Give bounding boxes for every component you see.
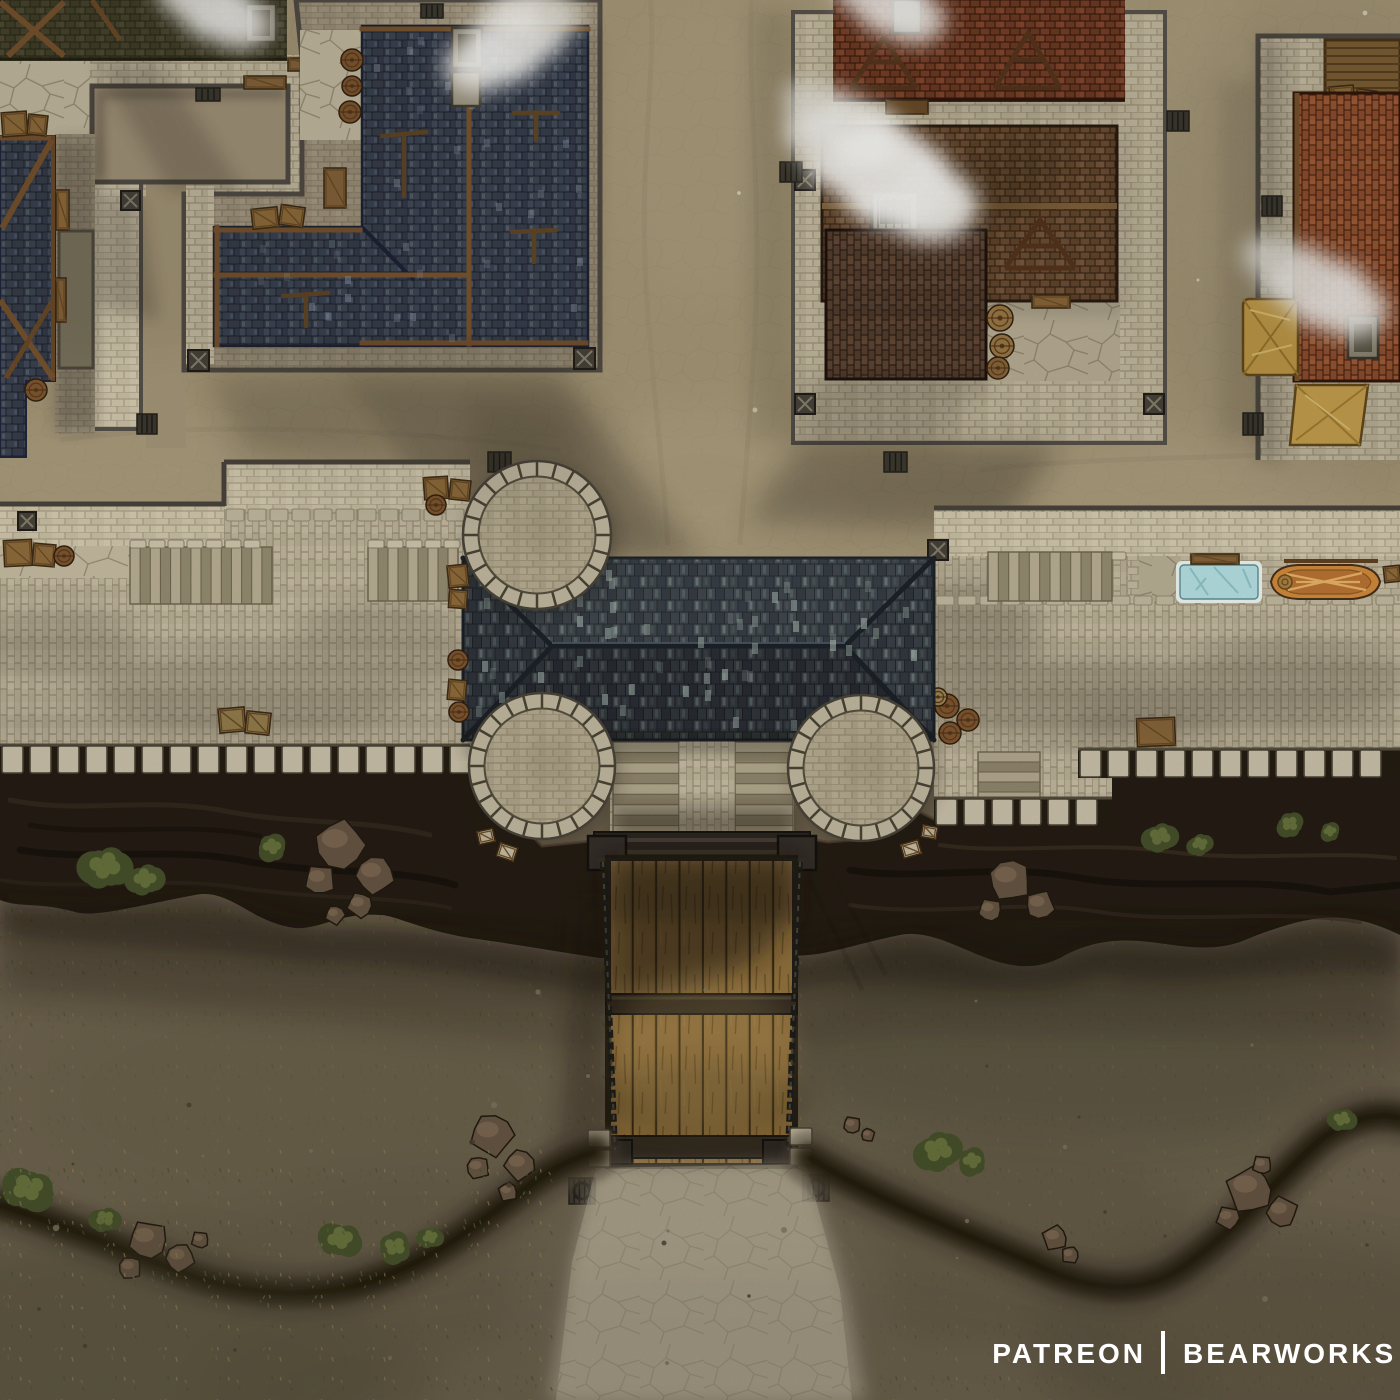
svg-text:BEARWORKS: BEARWORKS — [1183, 1338, 1396, 1369]
svg-text:PATREON: PATREON — [992, 1338, 1146, 1369]
